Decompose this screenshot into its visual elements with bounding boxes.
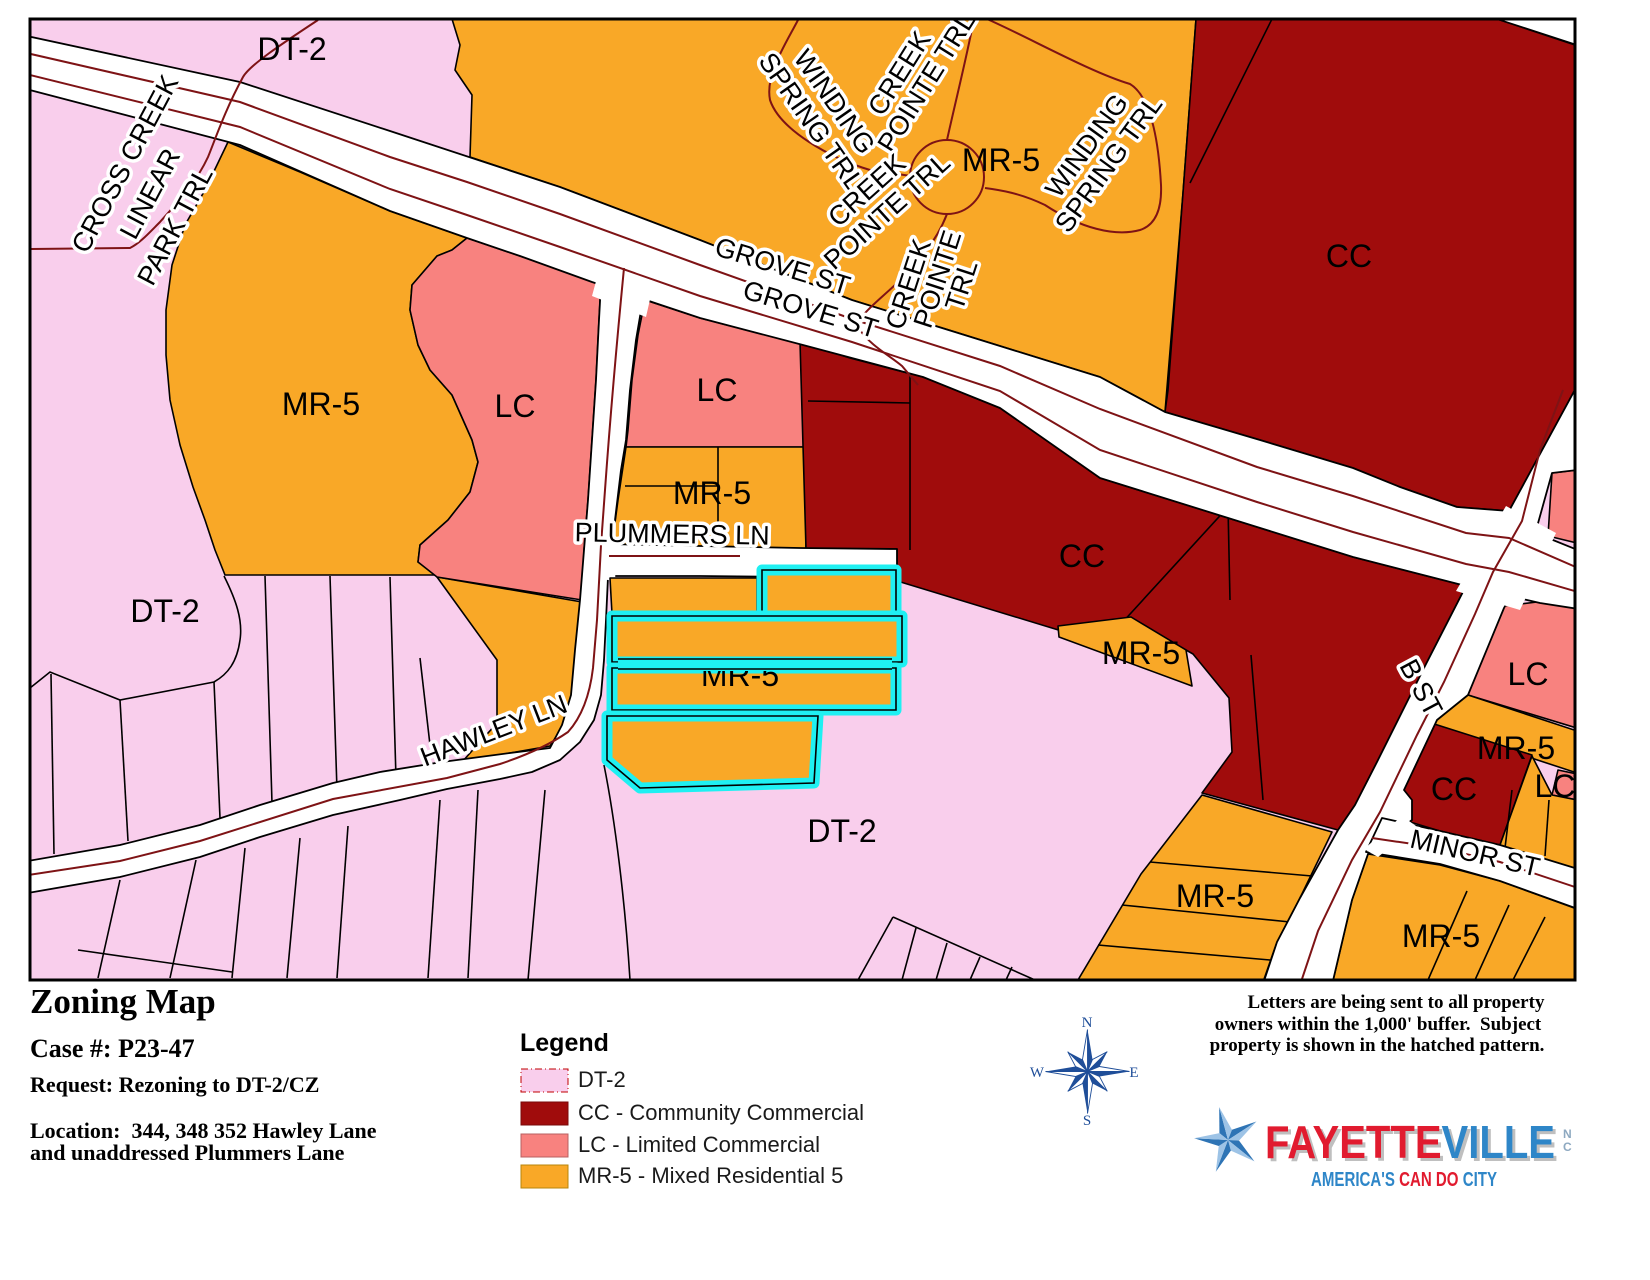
svg-text:MR-5 - Mixed Residential 5: MR-5 - Mixed Residential 5 (578, 1163, 843, 1188)
svg-text:CC: CC (1059, 538, 1105, 574)
svg-text:LC: LC (495, 388, 536, 424)
svg-text:CC - Community Commercial: CC - Community Commercial (578, 1100, 864, 1125)
svg-text:N: N (1563, 1127, 1572, 1141)
svg-text:DT-2: DT-2 (130, 593, 199, 629)
svg-text:MR-5: MR-5 (673, 475, 751, 511)
svg-text:DT-2: DT-2 (257, 31, 326, 67)
svg-text:MR-5: MR-5 (1477, 730, 1555, 766)
svg-text:MR-5: MR-5 (1402, 918, 1480, 954)
svg-text:MR-5: MR-5 (962, 142, 1040, 178)
svg-text:PLUMMERS LN: PLUMMERS LN (574, 517, 770, 550)
svg-text:LC: LC (1535, 768, 1576, 804)
svg-text:LC: LC (1508, 656, 1549, 692)
svg-text:LC - Limited Commercial: LC - Limited Commercial (578, 1132, 820, 1157)
svg-text:AMERICA'S CAN DO CITY: AMERICA'S CAN DO CITY (1311, 1169, 1497, 1191)
svg-text:MR-5: MR-5 (282, 386, 360, 422)
svg-text:Case #: P23-47: Case #: P23-47 (30, 1034, 195, 1063)
svg-text:MR-5: MR-5 (1176, 878, 1254, 914)
svg-text:property is shown in the hatch: property is shown in the hatched pattern… (1210, 1035, 1545, 1056)
svg-text:LC: LC (697, 372, 738, 408)
svg-text:CC: CC (1431, 771, 1477, 807)
svg-text:E: E (1129, 1065, 1138, 1081)
svg-text:DT-2: DT-2 (807, 813, 876, 849)
svg-text:Zoning Map: Zoning Map (30, 982, 216, 1021)
svg-text:Legend: Legend (520, 1029, 609, 1057)
svg-text:C: C (1563, 1140, 1572, 1154)
svg-text:Request: Rezoning to DT-2/CZ: Request: Rezoning to DT-2/CZ (30, 1072, 319, 1097)
svg-text:and unaddressed Plummers Lane: and unaddressed Plummers Lane (30, 1140, 345, 1165)
svg-text:DT-2: DT-2 (578, 1067, 626, 1092)
svg-text:CC: CC (1326, 238, 1372, 274)
svg-text:S: S (1083, 1113, 1091, 1129)
svg-text:W: W (1030, 1065, 1045, 1081)
svg-text:owners within the 1,000' buffe: owners within the 1,000' buffer. Subject (1215, 1014, 1542, 1035)
svg-text:N: N (1082, 1015, 1093, 1031)
svg-text:MR-5: MR-5 (1102, 635, 1180, 671)
svg-text:Letters are being sent to all: Letters are being sent to all property (1248, 992, 1545, 1013)
svg-text:FAYETTEVILLE: FAYETTEVILLE (1265, 1116, 1555, 1168)
